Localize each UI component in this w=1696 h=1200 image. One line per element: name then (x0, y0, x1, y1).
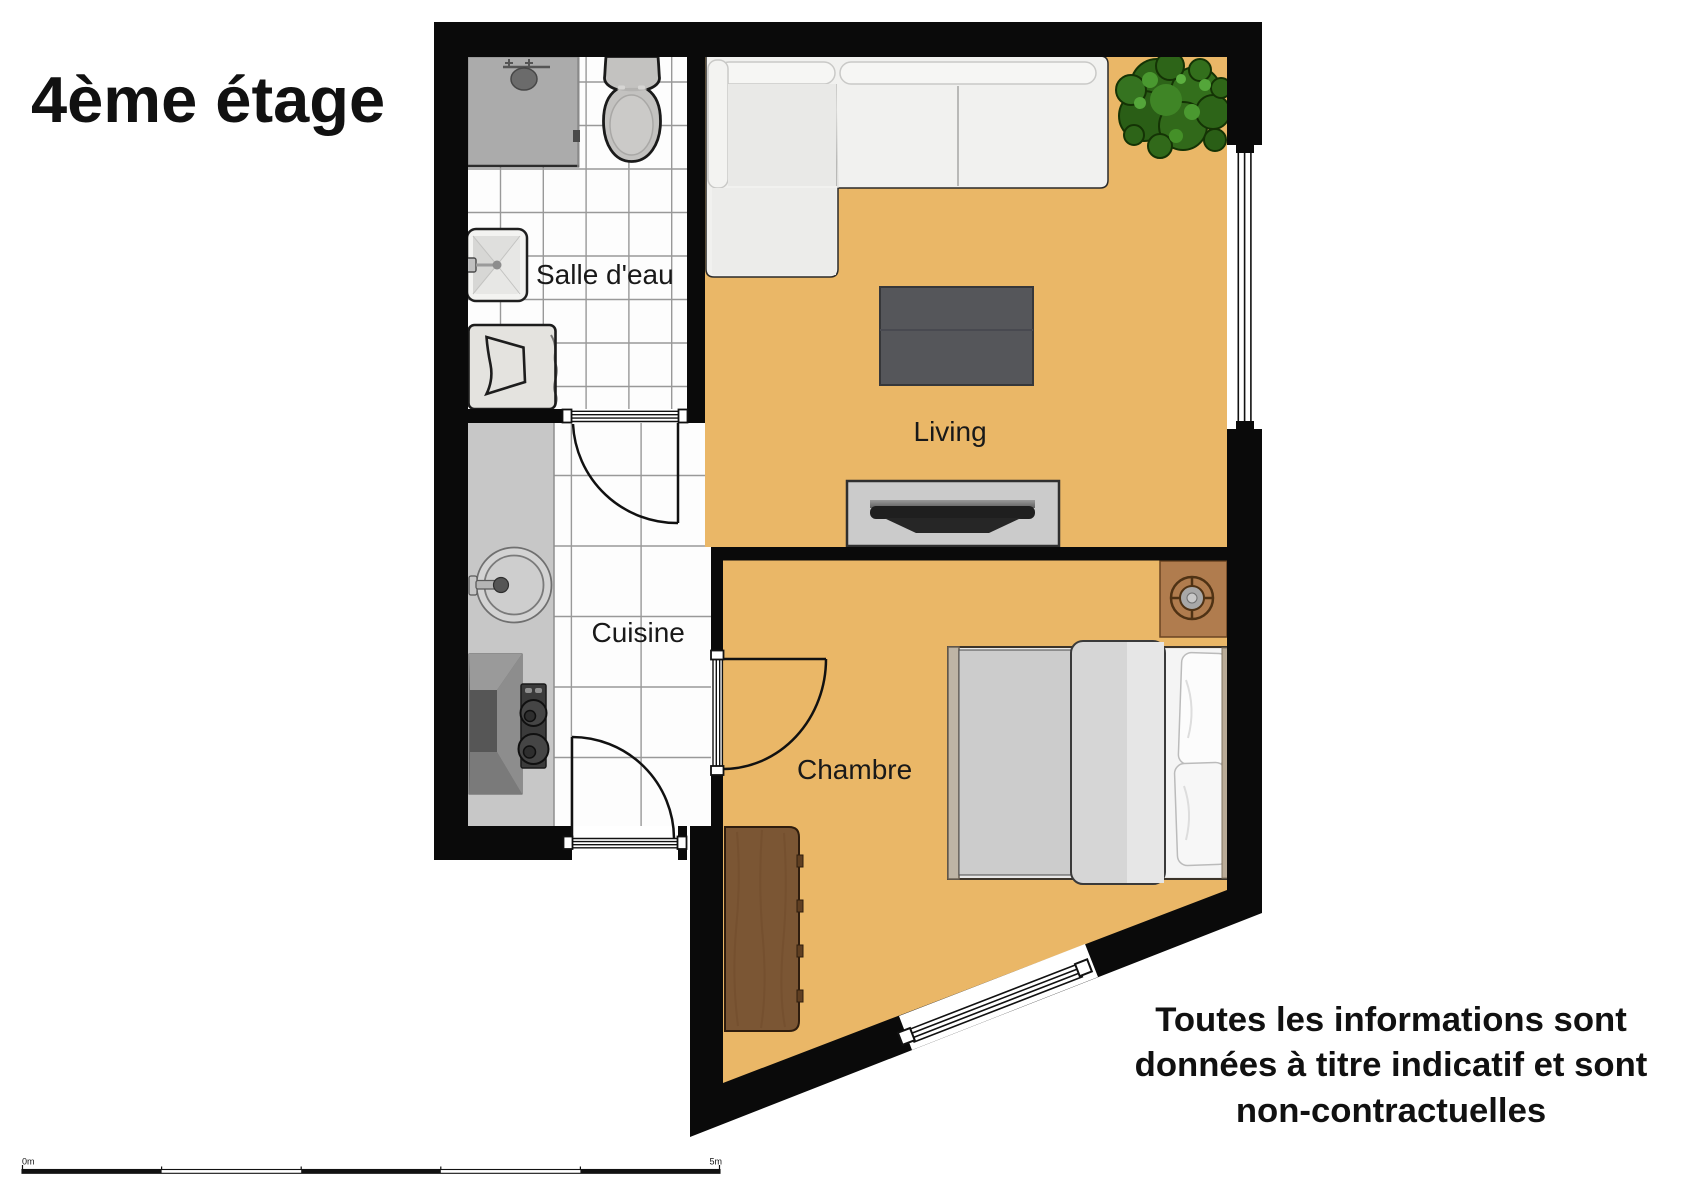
svg-text:0m: 0m (22, 1157, 35, 1167)
svg-text:données à titre indicatif et s: données à titre indicatif et sont (1135, 1046, 1648, 1084)
svg-text:Salle d'eau: Salle d'eau (536, 259, 674, 290)
svg-text:4ème étage: 4ème étage (31, 63, 385, 136)
svg-text:Living: Living (914, 416, 987, 447)
svg-text:5m: 5m (709, 1157, 722, 1167)
svg-text:non-contractuelles: non-contractuelles (1236, 1092, 1546, 1130)
svg-text:Chambre: Chambre (797, 754, 912, 785)
svg-text:Toutes les informations sont: Toutes les informations sont (1155, 1001, 1627, 1039)
svg-text:Cuisine: Cuisine (592, 617, 685, 648)
